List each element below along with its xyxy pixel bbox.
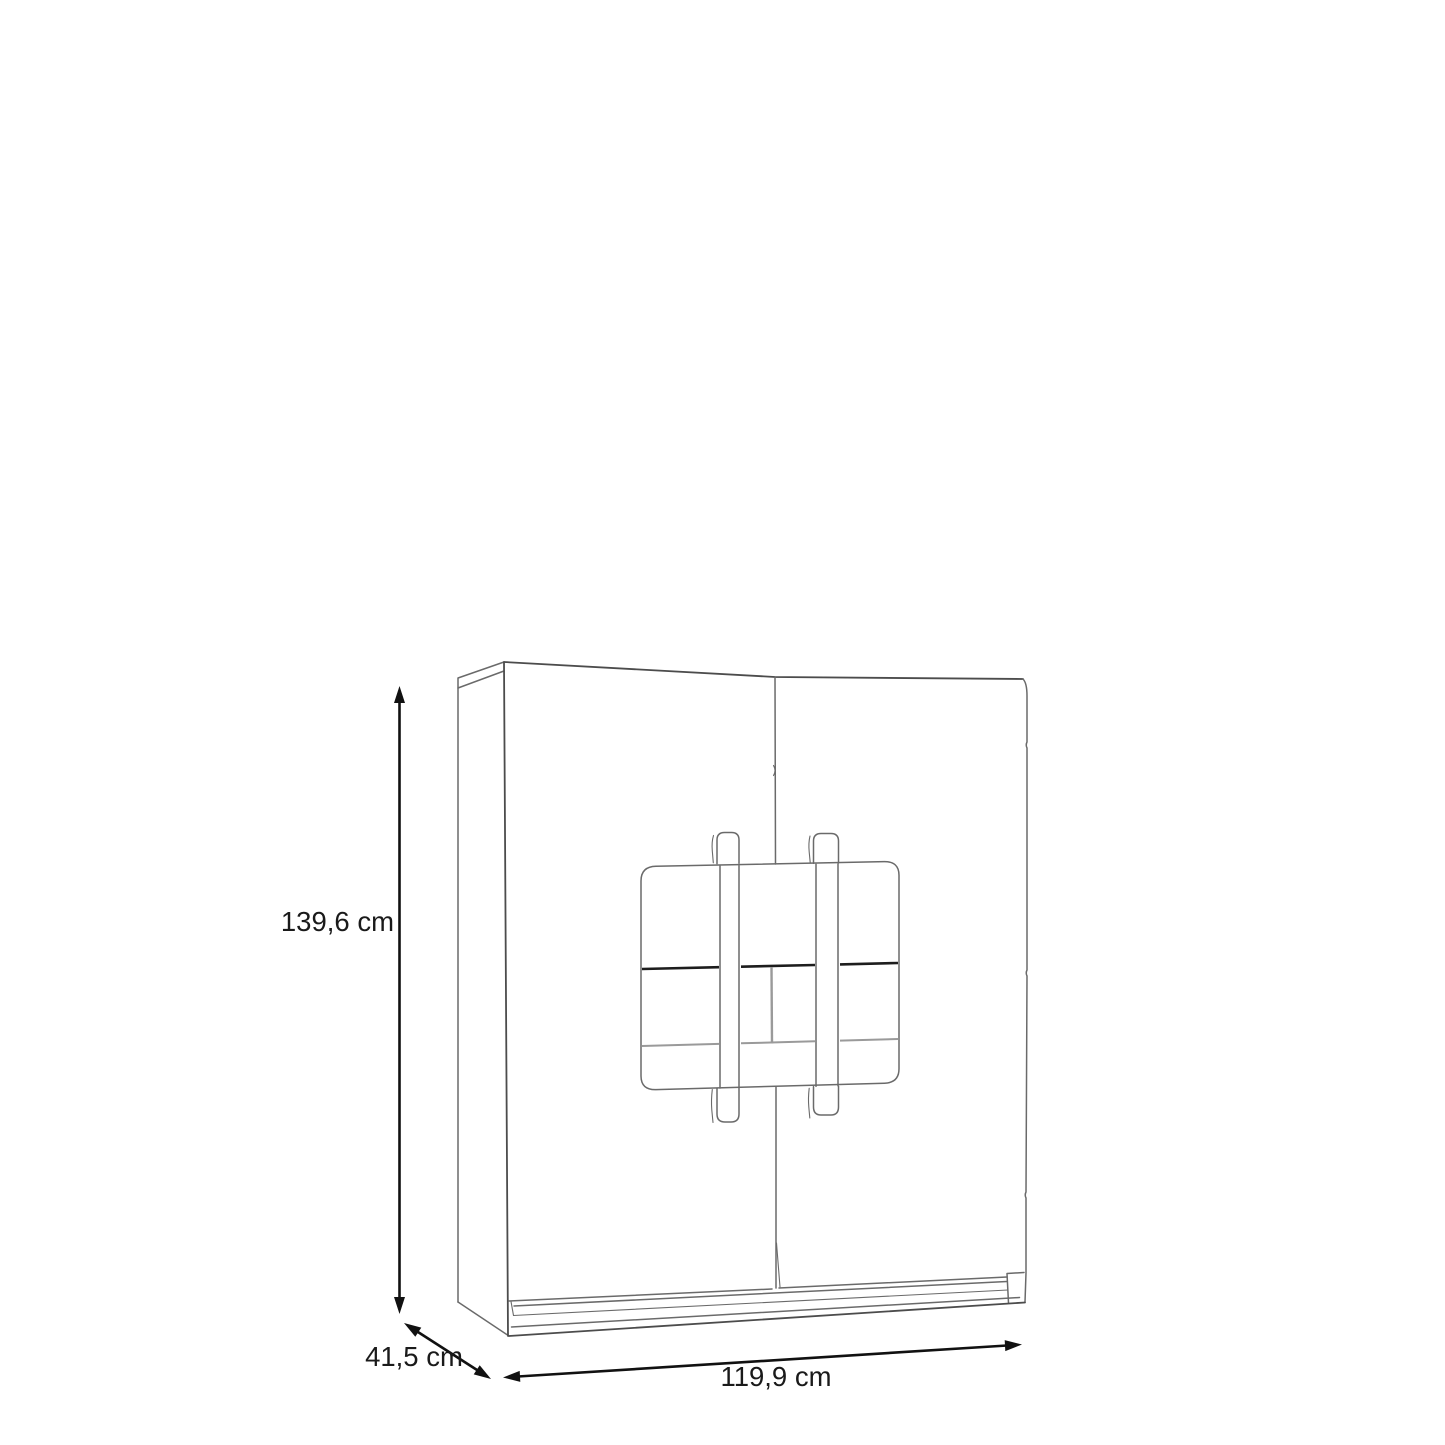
right-strap-bottom-tab <box>814 1086 839 1115</box>
top-front-edge <box>504 662 1023 679</box>
height-dimension-label: 139,6 cm <box>281 906 394 937</box>
width-dimension-label: 119,9 cm <box>720 1361 831 1392</box>
door-gap-bottom-fork <box>777 1243 781 1287</box>
height-dimension: 139,6 cm <box>281 686 405 1314</box>
depth-dimension-label: 41,5 cm <box>365 1341 463 1372</box>
doors <box>509 677 1007 1301</box>
decor-panel <box>641 862 899 1090</box>
right-strap-band <box>816 864 838 1086</box>
cabinet-dimension-drawing: 139,6 cm 41,5 cm 119,9 cm <box>0 0 1445 1445</box>
left-strap-band <box>720 866 739 1088</box>
depth-arrowhead-upper <box>404 1323 421 1337</box>
cabinet-carcass <box>458 662 1027 1336</box>
drawing-canvas: 139,6 cm 41,5 cm 119,9 cm <box>0 0 1445 1445</box>
front-left-edge <box>504 662 508 1336</box>
right-strap-top-fold <box>809 836 810 863</box>
cabinet-bottom-edge <box>509 1303 1025 1337</box>
left-strap <box>711 833 739 1123</box>
right-strap-bottom-fold <box>808 1088 809 1118</box>
left-strap-bottom-fold <box>711 1090 713 1123</box>
left-strap-bottom-tab <box>717 1088 739 1122</box>
plinth-left-cap <box>511 1302 514 1316</box>
left-strap-top-fold <box>712 836 713 863</box>
height-arrowhead-top <box>394 686 405 703</box>
plinth <box>509 1273 1025 1337</box>
width-dimension: 119,9 cm <box>503 1340 1022 1392</box>
door-bottom-edges <box>509 1277 1007 1301</box>
left-strap-top-tab <box>717 833 739 864</box>
depth-arrowhead-lower <box>474 1365 491 1379</box>
decor-panel-group <box>641 833 899 1123</box>
width-arrowhead-right <box>1005 1340 1022 1351</box>
right-strap-top-tab <box>814 834 839 864</box>
right-strap <box>808 834 838 1119</box>
height-arrowhead-bottom <box>394 1297 405 1314</box>
door-gap-hinge-notch <box>774 766 776 776</box>
right-edge <box>1023 679 1027 1302</box>
depth-dimension: 41,5 cm <box>365 1323 491 1379</box>
panel-center-split <box>772 967 773 1044</box>
panel-upper-seam <box>642 963 898 969</box>
top-face-edge <box>458 662 504 688</box>
width-arrowhead-left <box>503 1371 520 1382</box>
left-side-bottom-edge <box>458 1302 509 1336</box>
panel-lower-seam <box>642 1039 898 1046</box>
